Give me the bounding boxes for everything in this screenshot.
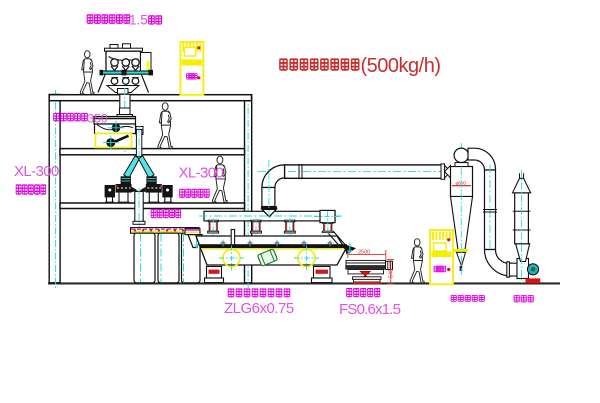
svg-text:1.5: 1.5 [129,13,148,28]
svg-text:FS0.6x1.5: FS0.6x1.5 [339,301,401,318]
svg-text:350: 350 [88,112,108,126]
svg-text:XL-300: XL-300 [14,163,59,180]
svg-text:545: 545 [389,269,395,278]
svg-text:ZLG6x0.75: ZLG6x0.75 [224,300,294,317]
svg-text:(500kg/h): (500kg/h) [361,55,441,77]
svg-text:2500: 2500 [358,250,370,256]
svg-text:XL-300: XL-300 [179,165,224,182]
